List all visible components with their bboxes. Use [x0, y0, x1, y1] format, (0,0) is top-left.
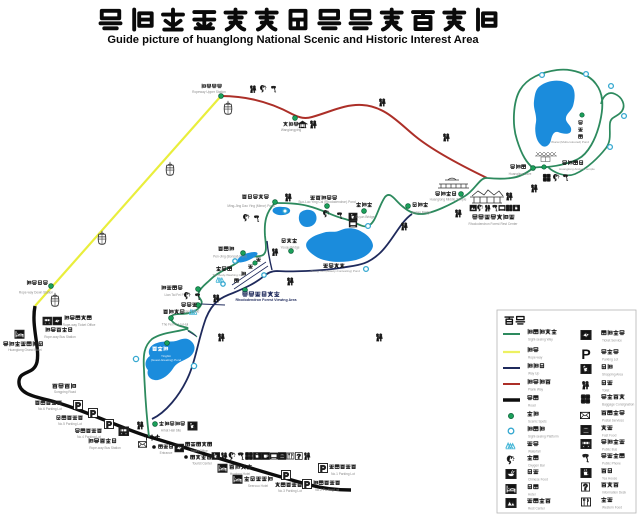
svg-text:Tourist Center: Tourist Center — [192, 462, 213, 466]
svg-text:Public Bus: Public Bus — [602, 447, 617, 451]
svg-text:Rhododendron Forest Viewing Ar: Rhododendron Forest Viewing Area — [235, 298, 297, 302]
svg-text:Youqu Bridge: Youqu Bridge — [280, 246, 299, 250]
svg-text:Huanglong Middle Temple: Huanglong Middle Temple — [430, 198, 467, 202]
svg-text:Sight-seeing Way: Sight-seeing Way — [528, 337, 553, 341]
svg-text:Rope-way Ticket Office: Rope-way Ticket Office — [63, 323, 96, 327]
svg-text:Wanglongping: Wanglongping — [281, 128, 301, 132]
svg-text:Huanglong Grand Hotel: Huanglong Grand Hotel — [8, 348, 42, 352]
svg-text:Pen-Jing (Bonsai) Pond: Pen-Jing (Bonsai) Pond — [213, 255, 247, 259]
svg-text:Huangjing Cave: Huangjing Cave — [509, 172, 532, 176]
svg-text:No.3 Parking Lot: No.3 Parking Lot — [278, 489, 302, 493]
svg-text:Suo-Luo Ying Cai (Rhododendron: Suo-Luo Ying Cai (Rhododendron) Pond — [298, 200, 355, 204]
svg-text:Waterfall: Waterfall — [528, 449, 541, 453]
svg-text:Songping Road: Songping Road — [54, 390, 76, 394]
svg-text:Rope-way Bus Station: Rope-way Bus Station — [44, 335, 76, 339]
svg-text:No.5 Parking Lot: No.5 Parking Lot — [58, 422, 82, 426]
svg-text:Fast Food: Fast Food — [602, 433, 617, 437]
svg-text:Shopping Area: Shopping Area — [602, 372, 623, 376]
svg-text:Sight-seeing Platform: Sight-seeing Platform — [528, 434, 559, 438]
svg-text:Zheng Yan (Beauty-Contesting): Zheng Yan (Beauty-Contesting) Pond — [310, 269, 360, 273]
svg-text:Public Phone: Public Phone — [602, 461, 621, 465]
svg-text:Jiexian Bridge: Jiexian Bridge — [411, 211, 431, 215]
svg-text:Toilet: Toilet — [602, 388, 610, 392]
svg-text:Road: Road — [528, 403, 536, 407]
svg-text:Information Desk: Information Desk — [602, 490, 626, 494]
svg-text:Rhododendron Forest Rest Cente: Rhododendron Forest Rest Center — [469, 222, 519, 226]
svg-text:Seercuo Hotel: Seercuo Hotel — [248, 484, 268, 488]
svg-text:Suyun Bridge: Suyun Bridge — [355, 215, 374, 219]
svg-text:Hotel: Hotel — [528, 492, 536, 496]
svg-text:Arhat Hall Site: Arhat Hall Site — [161, 429, 182, 433]
svg-text:Baggage Consignation: Baggage Consignation — [602, 402, 634, 406]
svg-text:No.1 Parking Lot: No.1 Parking Lot — [331, 472, 355, 476]
svg-text:Postal Services: Postal Services — [602, 418, 624, 422]
svg-text:Wucai (Multi-coloured) Pond: Wucai (Multi-coloured) Pond — [551, 140, 589, 144]
svg-text:Scenic Spots: Scenic Spots — [528, 419, 547, 423]
svg-text:Ming-Jing Dao Ying (Mirror) Po: Ming-Jing Dao Ying (Mirror) Pond — [227, 204, 275, 208]
svg-text:No.2 Parking Lot: No.2 Parking Lot — [315, 488, 339, 492]
svg-text:Ticket Service: Ticket Service — [602, 338, 622, 342]
svg-text:The Body-Washing Cave: The Body-Washing Cave — [212, 273, 246, 277]
svg-text:(Guest-Greeting) Pond: (Guest-Greeting) Pond — [151, 358, 182, 362]
svg-text:Western Food: Western Food — [602, 505, 622, 509]
svg-text:Chinese Food: Chinese Food — [528, 477, 548, 481]
svg-text:Guide picture of huanglong Nat: Guide picture of huanglong National Scen… — [107, 34, 479, 46]
svg-text:The Fei Pu Liu Hui: The Fei Pu Liu Hui — [162, 323, 189, 327]
svg-text:Entrance: Entrance — [160, 451, 173, 455]
svg-text:Ticket Office: Ticket Office — [190, 449, 208, 453]
svg-text:Rest Center: Rest Center — [528, 506, 546, 510]
svg-text:Tea House: Tea House — [602, 476, 617, 480]
svg-text:Lian Tai Fei Pu: Lian Tai Fei Pu — [164, 293, 185, 297]
svg-text:Rope-way Bus Station: Rope-way Bus Station — [89, 446, 121, 450]
svg-text:Rope-way Down Station: Rope-way Down Station — [19, 291, 53, 295]
svg-text:Plank Way: Plank Way — [528, 387, 544, 391]
svg-text:Parking Lot: Parking Lot — [602, 357, 618, 361]
svg-text:Rope-way: Rope-way — [528, 355, 543, 359]
svg-text:P: P — [581, 346, 590, 362]
svg-text:Lessen Pond: Lessen Pond — [181, 310, 200, 314]
svg-text:Huanglong Ancient Temple: Huanglong Ancient Temple — [559, 167, 595, 171]
svg-text:Oxygen Bar: Oxygen Bar — [528, 463, 546, 467]
svg-text:Ropeway Upper Station: Ropeway Upper Station — [192, 90, 226, 94]
svg-text:Way Up: Way Up — [528, 371, 539, 375]
svg-text:No.6 Parking Lot: No.6 Parking Lot — [38, 407, 62, 411]
